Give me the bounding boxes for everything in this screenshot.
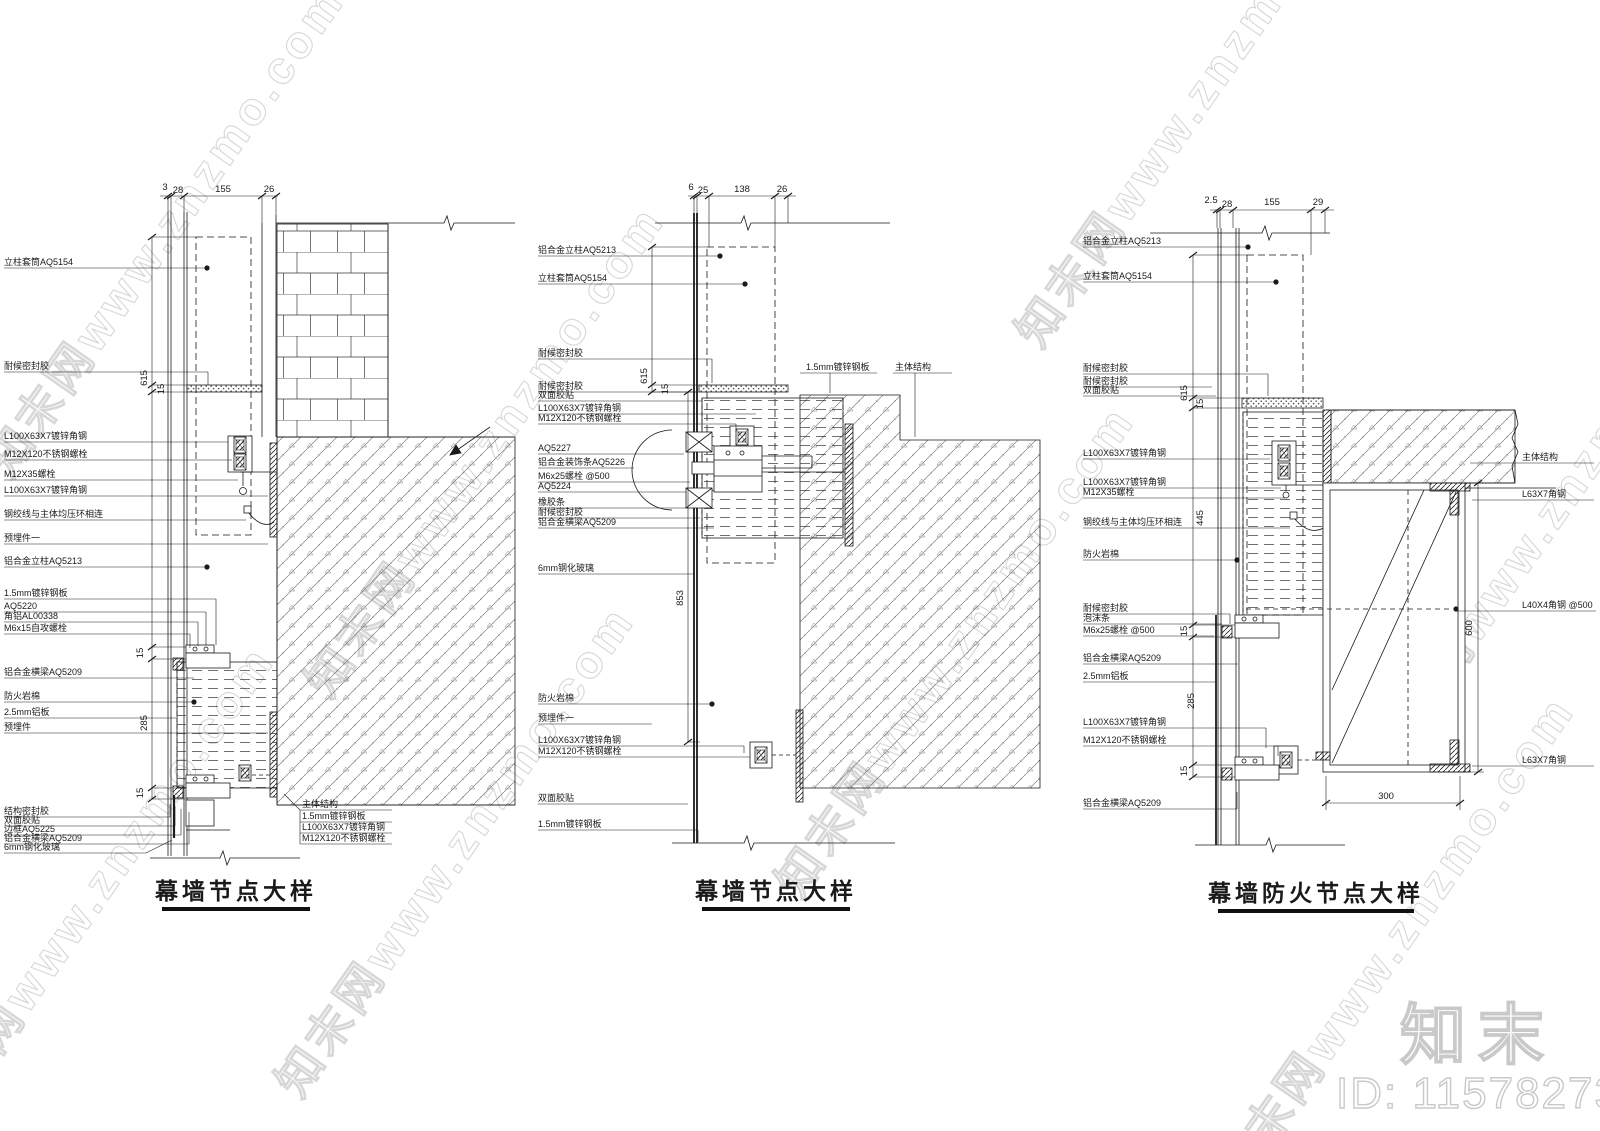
bolt-icon	[1278, 445, 1290, 461]
transom-profile	[714, 446, 762, 492]
angle-flange	[1450, 491, 1459, 515]
transom-profile	[1235, 765, 1279, 780]
dim-text: 300	[1378, 791, 1394, 802]
dim-text: 3	[162, 182, 167, 193]
dim-text: 285	[139, 715, 150, 731]
part-label: 2.5mm铝板	[1083, 670, 1129, 681]
part-label: M12X120不锈钢螺栓	[538, 745, 622, 756]
part-label: L100X63X7镀锌角钢	[4, 430, 87, 441]
part-label: 双面胶贴	[538, 792, 574, 803]
part-label: 泡沫条	[1083, 612, 1110, 623]
bolt-icon	[234, 437, 246, 453]
dim-text: 445	[1195, 510, 1206, 526]
firestop-band	[177, 662, 277, 788]
break-line	[672, 836, 895, 850]
embed-plate	[270, 443, 277, 537]
dim-text: 26	[264, 184, 275, 195]
part-label: M6x25螺栓 @500	[1083, 624, 1155, 635]
transom-profile	[186, 783, 230, 798]
bolt-icon	[234, 454, 246, 470]
bolt-head	[240, 488, 247, 495]
wire-clamp	[1290, 512, 1297, 519]
panel-title: 幕墙节点大样	[694, 878, 857, 904]
dim-text: 28	[173, 185, 184, 196]
part-label: 耐候密封胶	[1083, 362, 1128, 373]
dim-text: 600	[1464, 620, 1475, 636]
part-label: 主体结构	[1522, 451, 1558, 462]
part-label: 钢绞线与主体均压环相连	[4, 508, 103, 519]
bolt-icon	[736, 429, 748, 445]
part-label: 6mm钢化玻璃	[4, 841, 60, 852]
part-label: M12X120不锈钢螺栓	[1083, 734, 1167, 745]
wire-clamp	[244, 506, 251, 513]
mullion-lines	[1218, 228, 1239, 845]
part-label: 耐候密封胶	[538, 506, 583, 517]
dim-text: 28	[1222, 199, 1233, 210]
part-label: M12X120不锈钢螺栓	[538, 412, 622, 423]
part-label: 立柱套筒AQ5154	[538, 272, 607, 283]
part-label: M12X120不锈钢螺栓	[302, 832, 386, 843]
sealant-band	[699, 385, 788, 392]
part-label: 1.5mm镀锌钢板	[806, 361, 870, 372]
dim-text: 2.5	[1204, 195, 1217, 206]
watermark-text: 知末网www.znzmo.com	[1006, 0, 1385, 356]
part-label: AQ5220	[4, 601, 37, 611]
part-label: AQ5224	[538, 481, 571, 491]
break-line	[655, 216, 890, 230]
panel-title: 幕墙节点大样	[154, 878, 317, 904]
part-label: 预埋件	[4, 721, 31, 732]
frame-profile	[186, 800, 214, 826]
part-label: 防火岩棉	[538, 692, 574, 703]
dim-text: 138	[734, 184, 750, 195]
part-label: 橡胶条	[538, 496, 565, 507]
angle-flange	[1430, 483, 1470, 491]
part-label: 1.5mm镀锌钢板	[538, 818, 602, 829]
angle-flange	[1316, 752, 1330, 760]
panel-titles: 幕墙节点大样 幕墙节点大样 幕墙防火节点大样	[154, 878, 1424, 913]
bolt-icon	[1280, 752, 1292, 768]
break-line	[1150, 226, 1330, 240]
part-label: 1.5mm镀锌钢板	[302, 810, 366, 821]
part-label: L100X63X7镀锌角钢	[1083, 716, 1166, 727]
brick-wall	[277, 224, 388, 437]
dim-text: 615	[1179, 385, 1190, 401]
title-underline	[702, 907, 850, 911]
part-label: 主体结构	[895, 361, 931, 372]
dim-text: 15	[135, 648, 146, 659]
part-label: 铝合金立柱AQ5213	[4, 555, 82, 566]
logo-text: 知末	[1400, 998, 1556, 1072]
angle-flange	[1450, 740, 1459, 764]
concrete-structure	[277, 437, 515, 805]
part-label: L100X63X7镀锌角钢	[4, 484, 87, 495]
seal-block	[1222, 768, 1232, 780]
sealant-band	[187, 385, 262, 392]
dim-text: 15	[1179, 626, 1190, 637]
dim-text: 15	[156, 384, 167, 395]
part-label: 铝合金横梁AQ5209	[1083, 797, 1161, 808]
drawing-canvas: 知末网www.znzmo.com 知末网www.znzmo.com 知末网www…	[0, 0, 1600, 1131]
part-label: 防火岩棉	[1083, 548, 1119, 559]
seal-block	[173, 658, 183, 670]
dim-text: 285	[1186, 693, 1197, 709]
part-label: 铝合金横梁AQ5209	[1083, 652, 1161, 663]
transom-profile	[1235, 623, 1279, 638]
sealant-band	[1242, 398, 1323, 408]
part-label: L63X7角钢	[1522, 754, 1566, 765]
horizontal-bolt	[692, 462, 716, 474]
break-line	[1195, 838, 1345, 852]
transom-profile	[186, 653, 230, 668]
cad-sheet: 知末网www.znzmo.com 知末网www.znzmo.com 知末网www…	[0, 0, 1600, 1131]
embed-plate	[1323, 410, 1331, 488]
part-label: M12X35螺栓	[4, 468, 56, 479]
part-label: 1.5mm镀锌钢板	[4, 587, 68, 598]
title-underline	[162, 907, 310, 911]
panel-2-dims: 6 25 138 26 615 15 853	[639, 182, 787, 606]
part-label: 预埋件一	[4, 532, 40, 543]
dim-text: 615	[639, 368, 650, 384]
part-label: 双面胶贴	[538, 389, 574, 400]
part-label: L100X63X7镀锌角钢	[1083, 476, 1166, 487]
angle-flange	[1430, 764, 1470, 772]
dim-text: 29	[1313, 197, 1324, 208]
seal-block	[1222, 626, 1232, 638]
part-label: M12X120不锈钢螺栓	[4, 448, 88, 459]
site-watermark: 知末 ID: 1157827312	[1336, 998, 1600, 1118]
embed-plate	[845, 424, 853, 546]
part-label: L100X63X7镀锌角钢	[538, 402, 621, 413]
dim-text: 25	[698, 185, 709, 196]
transom-profile	[1235, 615, 1263, 623]
bolt-icon	[755, 747, 767, 763]
part-label: 立柱套筒AQ5154	[1083, 270, 1152, 281]
part-label: L100X63X7镀锌角钢	[1083, 447, 1166, 458]
part-label: 铝合金立柱AQ5213	[1083, 235, 1161, 246]
bolt-icon	[1278, 463, 1290, 479]
part-label: 立柱套筒AQ5154	[4, 256, 73, 267]
part-label: M12X35螺栓	[1083, 486, 1135, 497]
transom-profile	[186, 775, 214, 783]
dim-text: 15	[135, 788, 146, 799]
part-label: 角铝AL00338	[4, 610, 58, 621]
part-label: AQ5227	[538, 443, 571, 453]
dim-text: 26	[777, 184, 788, 195]
part-label: 主体结构	[302, 798, 338, 809]
concrete-slab	[1331, 410, 1515, 483]
dim-text: 615	[139, 370, 150, 386]
part-label: 2.5mm铝板	[4, 706, 50, 717]
bolt-icon	[239, 765, 251, 781]
transom-profile	[1235, 757, 1263, 765]
dim-text: 6	[688, 182, 693, 193]
part-label: M6x15自攻螺栓	[4, 622, 67, 633]
part-label: 铝合金横梁AQ5209	[538, 516, 616, 527]
part-label: L63X7角钢	[1522, 488, 1566, 499]
part-label: L100X63X7镀锌角钢	[302, 821, 385, 832]
part-label: 耐候密封胶	[1083, 602, 1128, 613]
part-label: 耐候密封胶	[4, 360, 49, 371]
embed-plate	[796, 710, 803, 802]
dim-text: 155	[1264, 197, 1280, 208]
part-label: 防火岩棉	[4, 690, 40, 701]
part-label: L100X63X7镀锌角钢	[538, 734, 621, 745]
part-label: 预埋件一	[538, 712, 574, 723]
title-underline	[1218, 909, 1414, 913]
decorative-strip-arc	[632, 430, 672, 510]
panel-title: 幕墙防火节点大样	[1207, 880, 1424, 906]
part-label: 6mm钢化玻璃	[538, 562, 594, 573]
part-label: 铝合金横梁AQ5209	[4, 666, 82, 677]
dim-text: 15	[1179, 766, 1190, 777]
part-label: M6x25螺栓 @500	[538, 470, 610, 481]
part-label: 耐候密封胶	[538, 347, 583, 358]
part-label: 钢绞线与主体均压环相连	[1083, 516, 1182, 527]
part-label: 铝合金装饰条AQ5226	[538, 456, 625, 467]
dim-text: 15	[660, 384, 671, 395]
part-label: L40X4角钢 @500	[1522, 599, 1593, 610]
dim-text: 155	[215, 184, 231, 195]
detail-panel-1	[4, 193, 515, 865]
part-label: 双面胶贴	[1083, 384, 1119, 395]
part-label: 铝合金立柱AQ5213	[538, 244, 616, 255]
image-id: ID: 1157827312	[1336, 1069, 1600, 1118]
dim-text: 853	[675, 590, 686, 606]
dim-text: 15	[1195, 399, 1206, 410]
